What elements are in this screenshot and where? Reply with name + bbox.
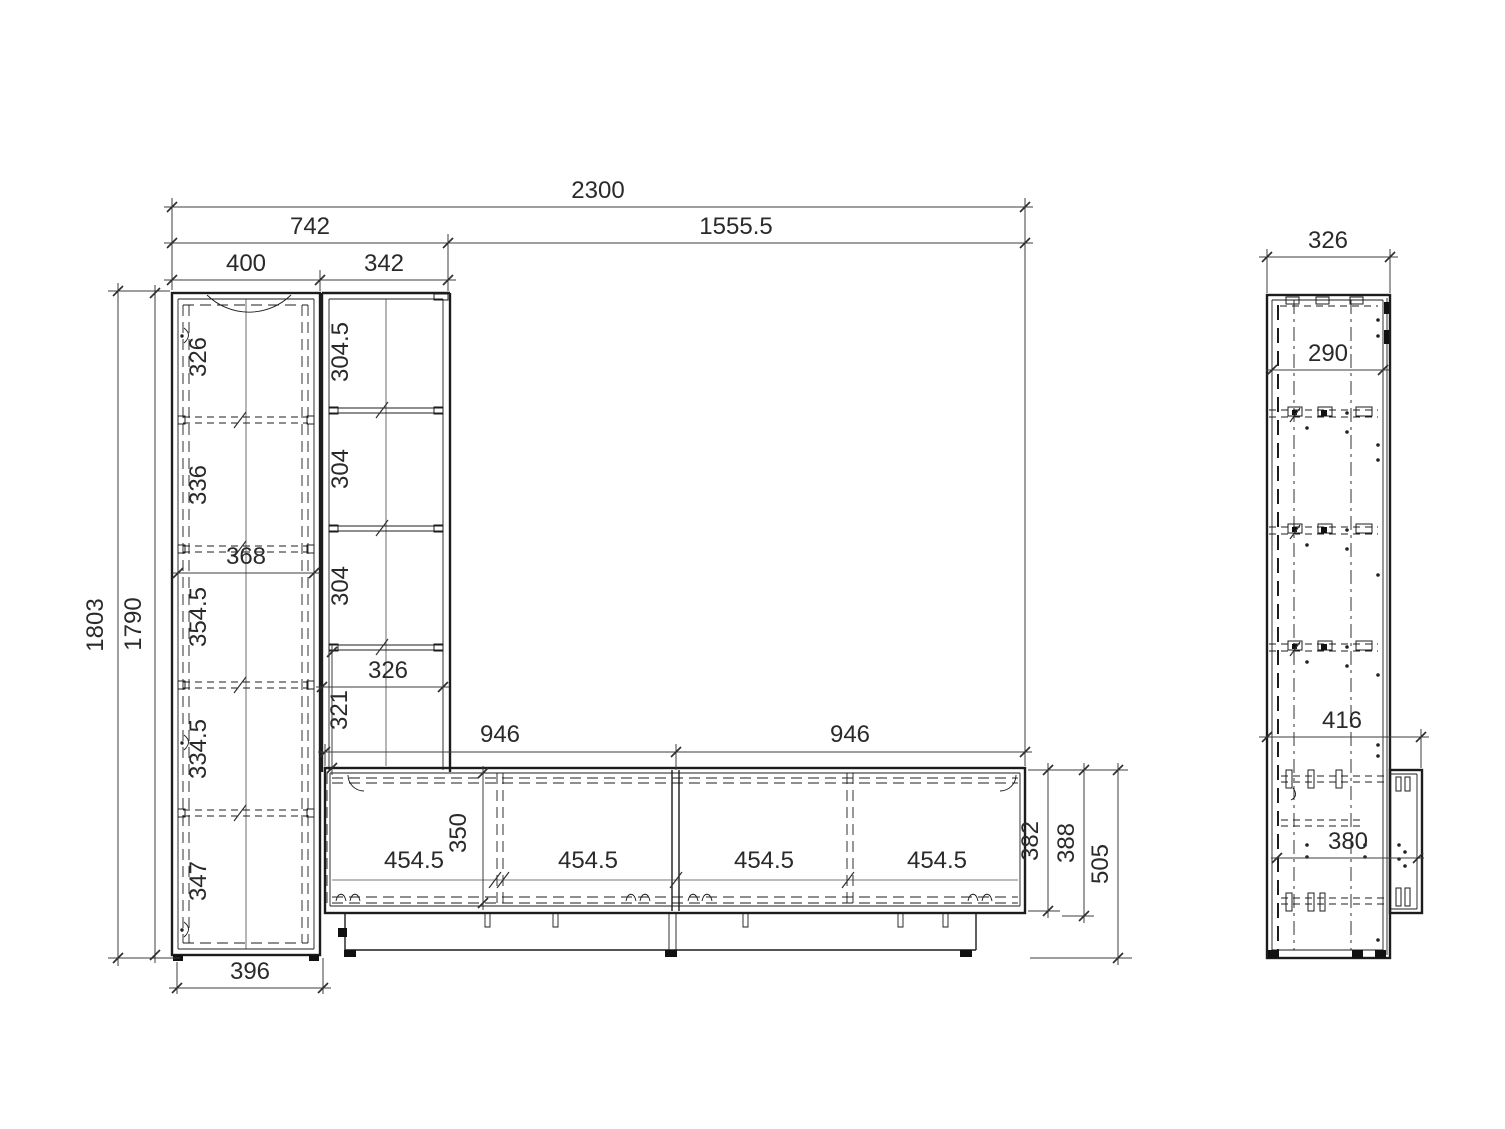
dim-left-section: 742 (290, 213, 330, 240)
dim-column-width: 342 (364, 250, 404, 277)
dim-lowboard-span-right: 946 (830, 721, 870, 748)
dim-cabinet-compartment-4: 334.5 (185, 719, 212, 779)
side-view: 326 290 416 380 (1259, 227, 1429, 958)
dim-height-outer: 1803 (82, 598, 109, 651)
dim-side-depth: 326 (1308, 227, 1348, 254)
lowboard-fittings (1286, 743, 1380, 800)
dim-column-inner-width: 326 (368, 657, 408, 684)
dim-base-width: 396 (230, 958, 270, 985)
dim-side-total-depth: 416 (1322, 707, 1362, 734)
dim-cabinet-inner-width: 368 (226, 543, 266, 570)
technical-drawing: 2300 742 1555.5 400 342 1803 1790 326 33… (0, 0, 1505, 1129)
flap-hinge-icon (336, 894, 992, 901)
dim-right-section: 1555.5 (699, 213, 772, 240)
dim-lowboard-height: 388 (1053, 823, 1080, 863)
dim-lowboard-compartment-3: 454.5 (734, 847, 794, 874)
fitting-band (1269, 524, 1380, 577)
dim-lowboard-total-height: 505 (1087, 844, 1114, 884)
dim-lowboard-compartment-2: 454.5 (558, 847, 618, 874)
front-dimensions: 2300 742 1555.5 400 342 1803 1790 326 33… (82, 177, 1132, 994)
dim-side-lowboard-depth: 380 (1328, 828, 1368, 855)
dim-column-compartment-1: 304.5 (327, 322, 354, 382)
side-panel (1267, 295, 1390, 958)
dim-lowboard-inner-height: 350 (445, 813, 472, 853)
drawing-canvas: 2300 742 1555.5 400 342 1803 1790 326 33… (0, 0, 1505, 1129)
dim-lowboard-compartment-4: 454.5 (907, 847, 967, 874)
dim-lowboard-span-left: 946 (480, 721, 520, 748)
dim-total-width: 2300 (571, 177, 624, 204)
front-view: 2300 742 1555.5 400 342 1803 1790 326 33… (82, 177, 1132, 994)
fitting-band (1269, 641, 1380, 677)
dim-lowboard-carcass-height: 382 (1017, 821, 1044, 861)
fitting-band (1269, 407, 1380, 462)
dim-lowboard-compartment-1: 454.5 (384, 847, 444, 874)
dim-column-compartment-2: 304 (327, 449, 354, 489)
door-gap-marks (485, 913, 948, 927)
dim-cabinet-compartment-5: 347 (185, 861, 212, 901)
dim-cabinet-compartment-1: 326 (185, 337, 212, 377)
lowboard-side-profile (1390, 770, 1422, 913)
dim-cabinet-compartment-3: 354.5 (185, 587, 212, 647)
dim-cabinet-compartment-2: 336 (185, 465, 212, 505)
dim-cabinet-width: 400 (226, 250, 266, 277)
dim-column-compartment-4: 321 (326, 690, 353, 730)
plinth (338, 913, 976, 957)
dim-column-compartment-3: 304 (327, 566, 354, 606)
dim-side-inner-depth: 290 (1308, 340, 1348, 367)
dim-height-carcass: 1790 (120, 597, 147, 650)
side-dimensions: 326 290 416 380 (1259, 227, 1429, 863)
